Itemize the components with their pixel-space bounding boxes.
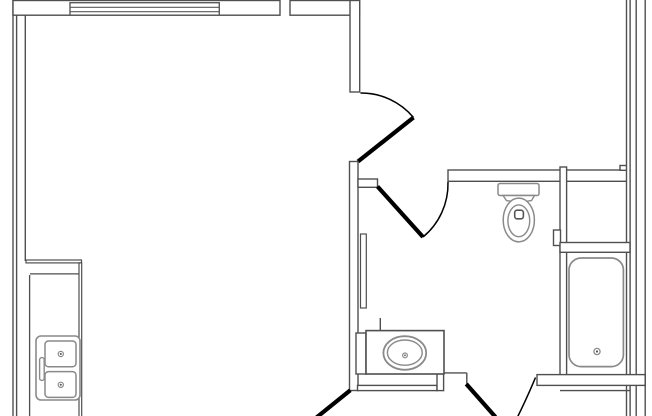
outer-right-wall xyxy=(636,0,645,416)
door4-leaf xyxy=(317,390,351,416)
toilet-tank xyxy=(498,184,539,196)
hall-corner-wall xyxy=(437,374,444,391)
entry-door-leaf xyxy=(358,118,414,162)
door3-leaf xyxy=(466,384,495,416)
toilet-flush-button xyxy=(515,210,524,219)
bathtub-drain-dot xyxy=(596,350,598,352)
pocket-door-panel xyxy=(361,234,367,308)
door3-arc xyxy=(518,378,536,416)
closet-bottom-wall xyxy=(560,243,630,253)
kitchen-sink-drain-2-dot xyxy=(60,384,62,386)
entry-door-arc xyxy=(361,93,414,118)
kitchen-sink-drain-1-dot xyxy=(60,353,62,355)
window xyxy=(70,3,219,16)
bath-door-stub xyxy=(358,179,378,187)
tub-south-wall xyxy=(537,375,645,386)
floor-plan-stage xyxy=(0,0,652,416)
vanity-filler xyxy=(356,333,366,374)
entry-wall xyxy=(350,1,360,93)
kitchen-counter-top-band xyxy=(26,260,82,263)
floor-plan-drawing xyxy=(0,0,652,416)
left-outer-wall xyxy=(13,0,17,416)
hall-band-wall xyxy=(358,385,438,390)
divider-wall xyxy=(560,167,567,377)
vanity-sink-drain-dot xyxy=(404,355,406,357)
toilet-room-top-wall xyxy=(448,170,627,181)
interior-right-wall xyxy=(627,0,631,416)
wall-notch xyxy=(620,166,627,171)
bath-door-leaf xyxy=(378,187,424,238)
top-wall-right xyxy=(290,1,360,16)
kitchen-sink-faucet xyxy=(40,358,45,381)
bath-door-arc xyxy=(423,182,448,237)
